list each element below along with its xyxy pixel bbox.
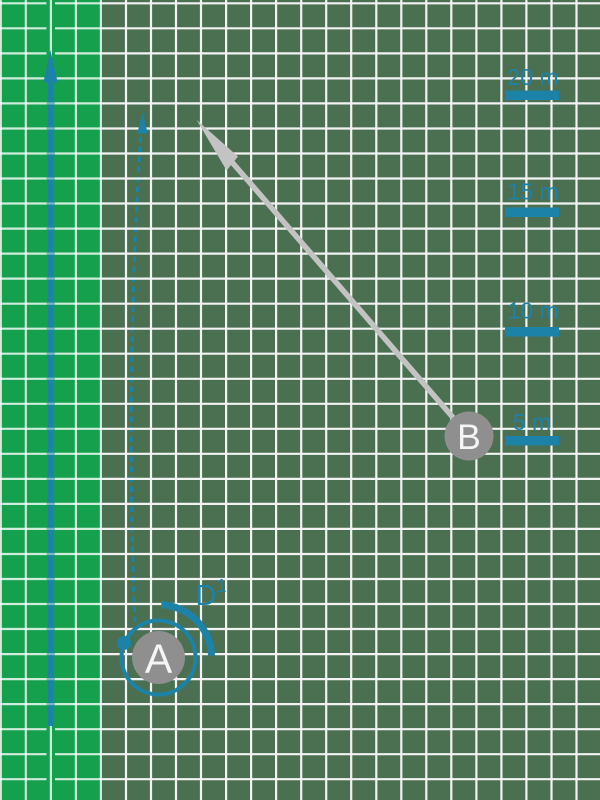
svg-text:15 m: 15 m (507, 178, 558, 204)
svg-text:20 m: 20 m (507, 64, 558, 90)
svg-text:B: B (457, 417, 481, 457)
svg-text:5 m: 5 m (513, 409, 551, 435)
svg-text:10 m: 10 m (507, 298, 558, 324)
svg-text:A: A (145, 636, 173, 682)
